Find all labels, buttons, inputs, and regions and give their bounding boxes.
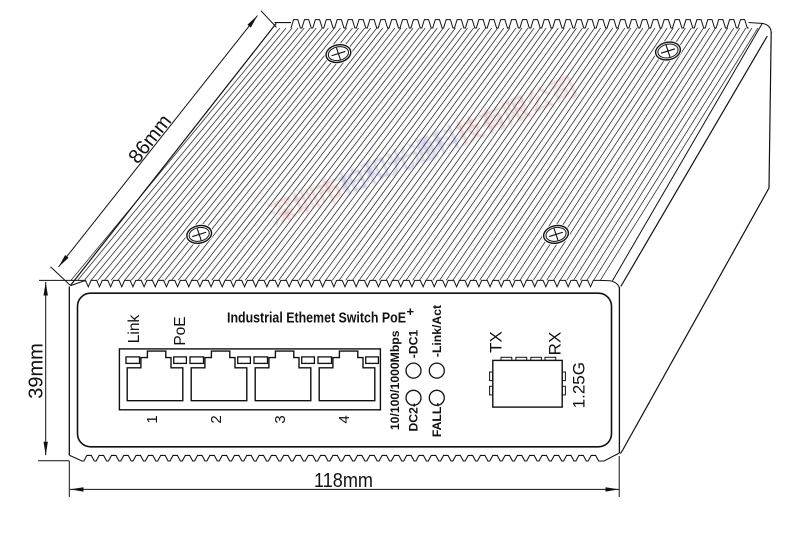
- svg-text:Link: Link: [126, 315, 143, 344]
- svg-text:10/100/1000Mbps: 10/100/1000Mbps: [388, 330, 402, 430]
- svg-text:3: 3: [272, 415, 289, 423]
- svg-text:PoE: PoE: [172, 316, 189, 345]
- svg-text:1: 1: [144, 415, 161, 423]
- svg-text:86mm: 86mm: [124, 111, 176, 168]
- svg-text:RX: RX: [546, 332, 565, 356]
- svg-text:FALL-: FALL-: [430, 403, 444, 438]
- svg-text:-DC1: -DC1: [407, 330, 421, 359]
- svg-text:1.25G: 1.25G: [570, 362, 589, 408]
- svg-text:TX: TX: [487, 331, 506, 353]
- svg-text:2: 2: [208, 415, 225, 423]
- svg-text:4: 4: [336, 415, 353, 423]
- svg-text:39mm: 39mm: [26, 343, 48, 399]
- svg-text:DC2-: DC2-: [407, 403, 421, 431]
- svg-text:118mm: 118mm: [314, 470, 373, 492]
- svg-text:+: +: [407, 304, 415, 319]
- svg-text:Industrial Ethemet Switch PoE: Industrial Ethemet Switch PoE: [227, 309, 406, 326]
- svg-text:-Link/Act: -Link/Act: [430, 305, 444, 357]
